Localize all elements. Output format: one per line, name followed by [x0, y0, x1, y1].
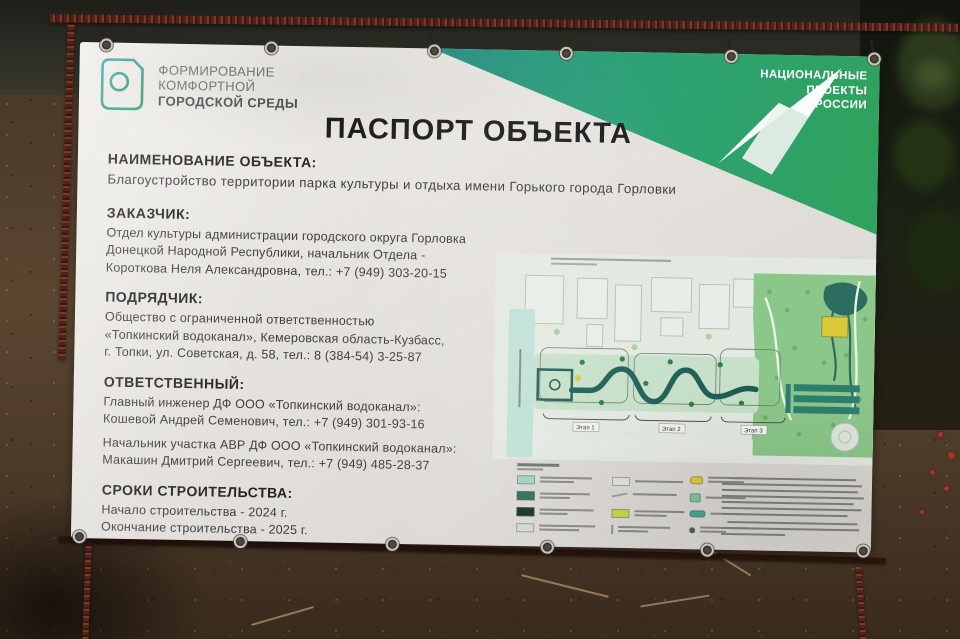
np-line1: НАЦИОНАЛЬНЫЕ	[760, 67, 868, 84]
np-line3: РОССИИ	[759, 97, 867, 114]
legend-label-illegible	[634, 510, 684, 519]
legend-label-illegible	[539, 508, 593, 517]
red-berry	[938, 432, 943, 437]
legend-green-symbol	[690, 493, 701, 502]
legend-swatch	[611, 509, 629, 518]
legend-label-illegible	[633, 493, 677, 498]
legend-swatch	[516, 507, 534, 516]
legend-swatch	[517, 491, 535, 500]
stage-label: Этап 3	[744, 428, 763, 434]
legend-label-illegible	[540, 492, 590, 501]
legend-swatch	[612, 477, 630, 486]
legend-yellow-symbol	[690, 476, 703, 484]
round-plaza	[831, 423, 860, 452]
legend-swatch	[517, 475, 535, 484]
red-berry	[948, 452, 955, 459]
fkgs-logo-text: ФОРМИРОВАНИЕ КОМФОРТНОЙ ГОРОДСКОЙ СРЕДЫ	[158, 62, 299, 111]
legend-label-illegible	[540, 476, 592, 485]
foliage-blob	[916, 60, 950, 90]
legend-swatch	[516, 523, 534, 532]
stage-label: Этап 1	[576, 425, 595, 431]
legend-label-illegible	[539, 524, 595, 533]
plan-legend	[491, 463, 872, 542]
photo-scene: НАЦИОНАЛЬНЫЕ ПРОЕКТЫ РОССИИ ФОРМИРОВАНИЕ…	[0, 0, 960, 639]
passport-banner: НАЦИОНАЛЬНЫЕ ПРОЕКТЫ РОССИИ ФОРМИРОВАНИЕ…	[71, 42, 880, 553]
red-berry	[930, 470, 935, 475]
legend-tick-symbol	[611, 525, 613, 534]
sport-courts	[785, 384, 860, 414]
park-plan-map: Этап 1 Этап 2 Этап 3	[492, 253, 876, 466]
legend-label-illegible	[618, 525, 670, 534]
red-berry	[944, 486, 949, 491]
legend-label-illegible	[635, 480, 683, 485]
national-projects-logo: НАЦИОНАЛЬНЫЕ ПРОЕКТЫ РОССИИ	[759, 67, 867, 113]
legend-title-illegible	[517, 468, 543, 470]
legend-teal-symbol	[689, 510, 705, 517]
park-area	[751, 273, 876, 457]
fkgs-line3: ГОРОДСКОЙ СРЕДЫ	[158, 93, 298, 111]
stage-label: Этап 2	[662, 427, 681, 433]
lower-strip	[533, 435, 753, 459]
fkgs-window-f-icon	[99, 56, 146, 113]
legend-line-symbol	[612, 492, 628, 497]
red-berry	[920, 510, 924, 514]
legend-title-illegible	[517, 463, 559, 466]
yellow-building	[822, 317, 848, 337]
foliage-blob	[894, 120, 954, 190]
park-plan: Этап 1 Этап 2 Этап 3	[491, 253, 876, 542]
fkgs-logo: ФОРМИРОВАНИЕ КОМФОРТНОЙ ГОРОДСКОЙ СРЕДЫ	[99, 56, 299, 116]
legend-dot-symbol	[689, 527, 695, 533]
